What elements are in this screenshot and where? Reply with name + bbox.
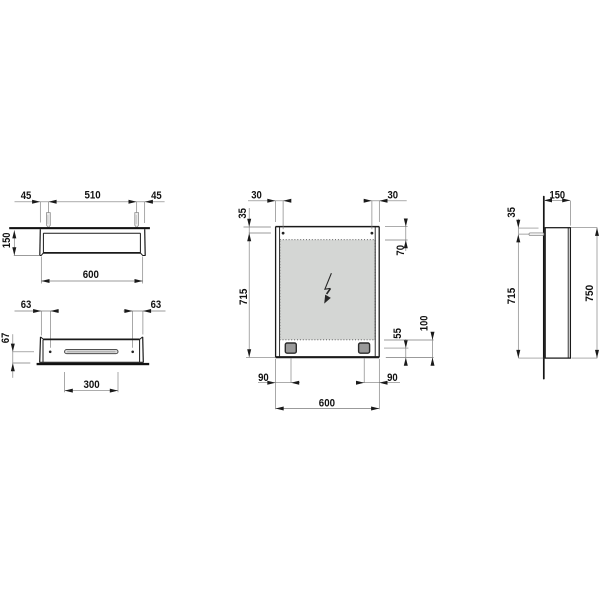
svg-text:63: 63: [151, 299, 162, 311]
svg-text:30: 30: [251, 190, 262, 202]
svg-text:715: 715: [506, 288, 518, 304]
svg-text:100: 100: [419, 315, 431, 331]
svg-text:63: 63: [21, 299, 32, 311]
svg-text:90: 90: [258, 372, 269, 384]
svg-text:30: 30: [388, 190, 399, 202]
svg-text:67: 67: [0, 333, 12, 344]
svg-text:45: 45: [21, 190, 32, 202]
svg-text:715: 715: [238, 289, 250, 305]
svg-text:750: 750: [584, 285, 596, 302]
svg-text:600: 600: [319, 397, 335, 409]
svg-text:150: 150: [550, 189, 566, 201]
svg-text:55: 55: [392, 328, 404, 339]
svg-text:600: 600: [83, 269, 99, 281]
svg-text:35: 35: [237, 208, 249, 219]
svg-text:300: 300: [84, 379, 100, 391]
svg-text:510: 510: [85, 190, 101, 202]
svg-text:150: 150: [1, 233, 13, 249]
svg-text:35: 35: [506, 207, 518, 218]
svg-text:45: 45: [151, 190, 162, 202]
svg-text:90: 90: [387, 372, 398, 384]
svg-text:70: 70: [395, 245, 407, 256]
